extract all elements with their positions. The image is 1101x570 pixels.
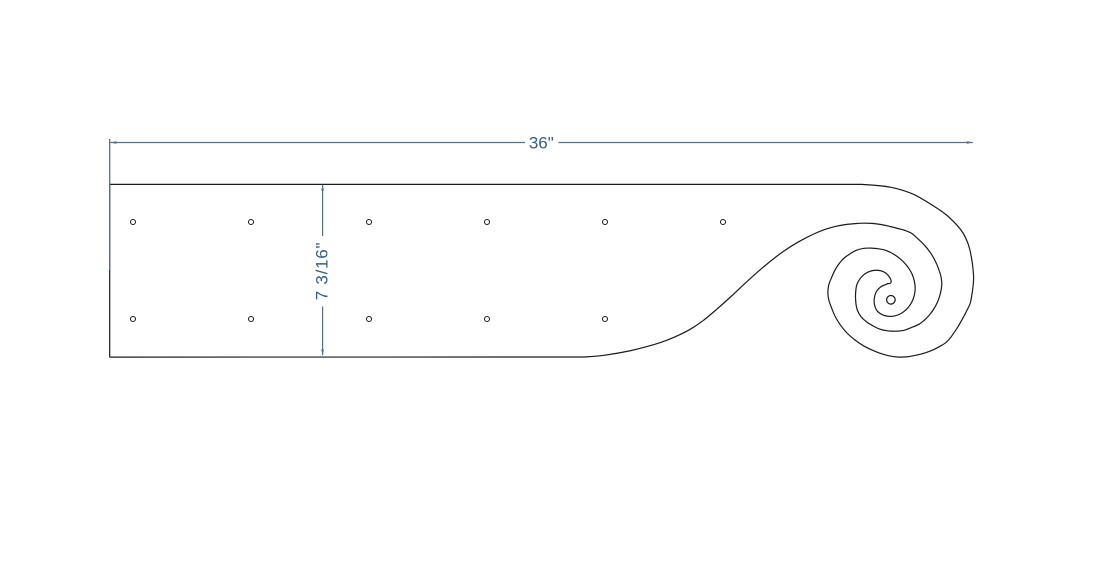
svg-text:36": 36"	[529, 133, 554, 152]
svg-text:7 3/16": 7 3/16"	[313, 242, 332, 301]
